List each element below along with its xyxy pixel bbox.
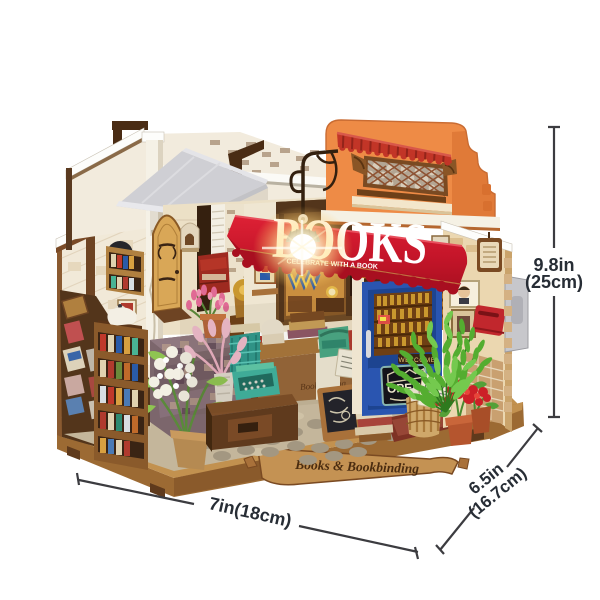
- svg-text:(25cm): (25cm): [525, 272, 583, 292]
- svg-text:7in(18cm): 7in(18cm): [207, 493, 293, 531]
- svg-text:WELCOME: WELCOME: [398, 357, 435, 364]
